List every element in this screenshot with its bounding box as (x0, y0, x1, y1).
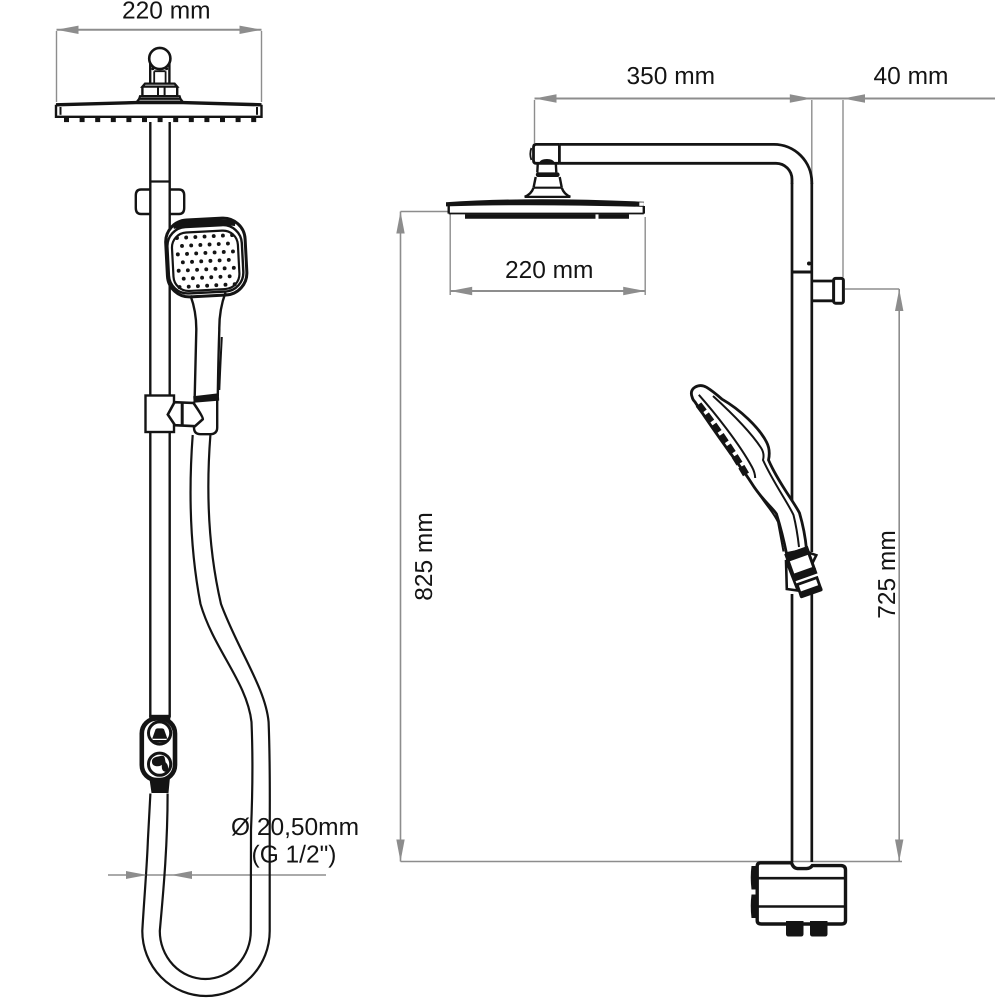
svg-text:220 mm: 220 mm (505, 257, 594, 284)
svg-text:Ø 20,50mm: Ø 20,50mm (231, 814, 359, 841)
svg-text:350 mm: 350 mm (627, 63, 716, 90)
svg-text:220 mm: 220 mm (122, 0, 211, 25)
svg-text:(G 1/2"): (G 1/2") (252, 842, 337, 869)
svg-text:725 mm: 725 mm (874, 530, 901, 619)
svg-text:40 mm: 40 mm (874, 63, 949, 90)
svg-text:825 mm: 825 mm (411, 512, 438, 601)
